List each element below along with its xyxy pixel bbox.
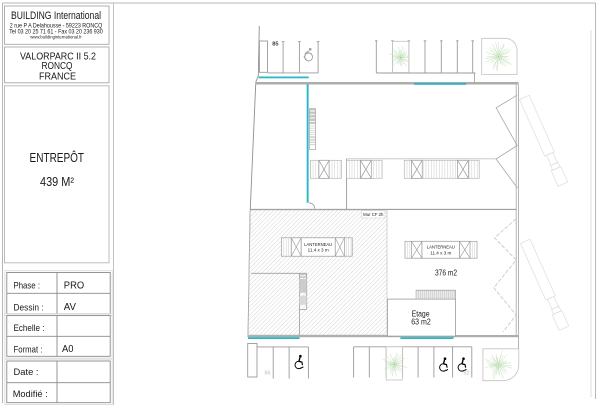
svg-text:LANTERNEAU: LANTERNEAU xyxy=(304,242,332,247)
svg-text:11.4 x 3 m: 11.4 x 3 m xyxy=(308,248,329,253)
svg-text:PRO: PRO xyxy=(64,281,85,292)
svg-text:Modifié :: Modifié : xyxy=(13,389,48,399)
svg-text:Format :: Format : xyxy=(14,345,43,355)
svg-text:92: 92 xyxy=(464,371,470,377)
svg-text:439 M²: 439 M² xyxy=(40,174,75,189)
svg-text:www.buildinginternational.fr: www.buildinginternational.fr xyxy=(30,35,82,41)
svg-text:Date :: Date : xyxy=(14,367,39,377)
svg-text:ENTREPÔT: ENTREPÔT xyxy=(30,150,85,165)
svg-text:BUILDING International: BUILDING International xyxy=(11,10,101,22)
svg-text:AV: AV xyxy=(64,302,77,313)
svg-text:Mur CF 2h: Mur CF 2h xyxy=(363,212,384,217)
svg-text:Tel 03 20 25 71 61 - Fax 03 20: Tel 03 20 25 71 61 - Fax 03 20 236 930 xyxy=(9,29,103,36)
svg-text:Dessin :: Dessin : xyxy=(14,303,44,313)
svg-text:LANTERNEAU: LANTERNEAU xyxy=(427,245,455,250)
svg-text:Phase :: Phase : xyxy=(14,280,41,290)
svg-text:FRANCE: FRANCE xyxy=(39,71,76,82)
svg-text:Echelle :: Echelle : xyxy=(14,323,45,333)
svg-text:63 m2: 63 m2 xyxy=(411,318,431,327)
svg-text:86: 86 xyxy=(265,371,271,377)
svg-text:A0: A0 xyxy=(62,344,74,355)
svg-text:85: 85 xyxy=(272,41,278,47)
svg-text:11.4 x 3 m: 11.4 x 3 m xyxy=(430,250,451,255)
svg-text:376 m2: 376 m2 xyxy=(435,268,457,278)
